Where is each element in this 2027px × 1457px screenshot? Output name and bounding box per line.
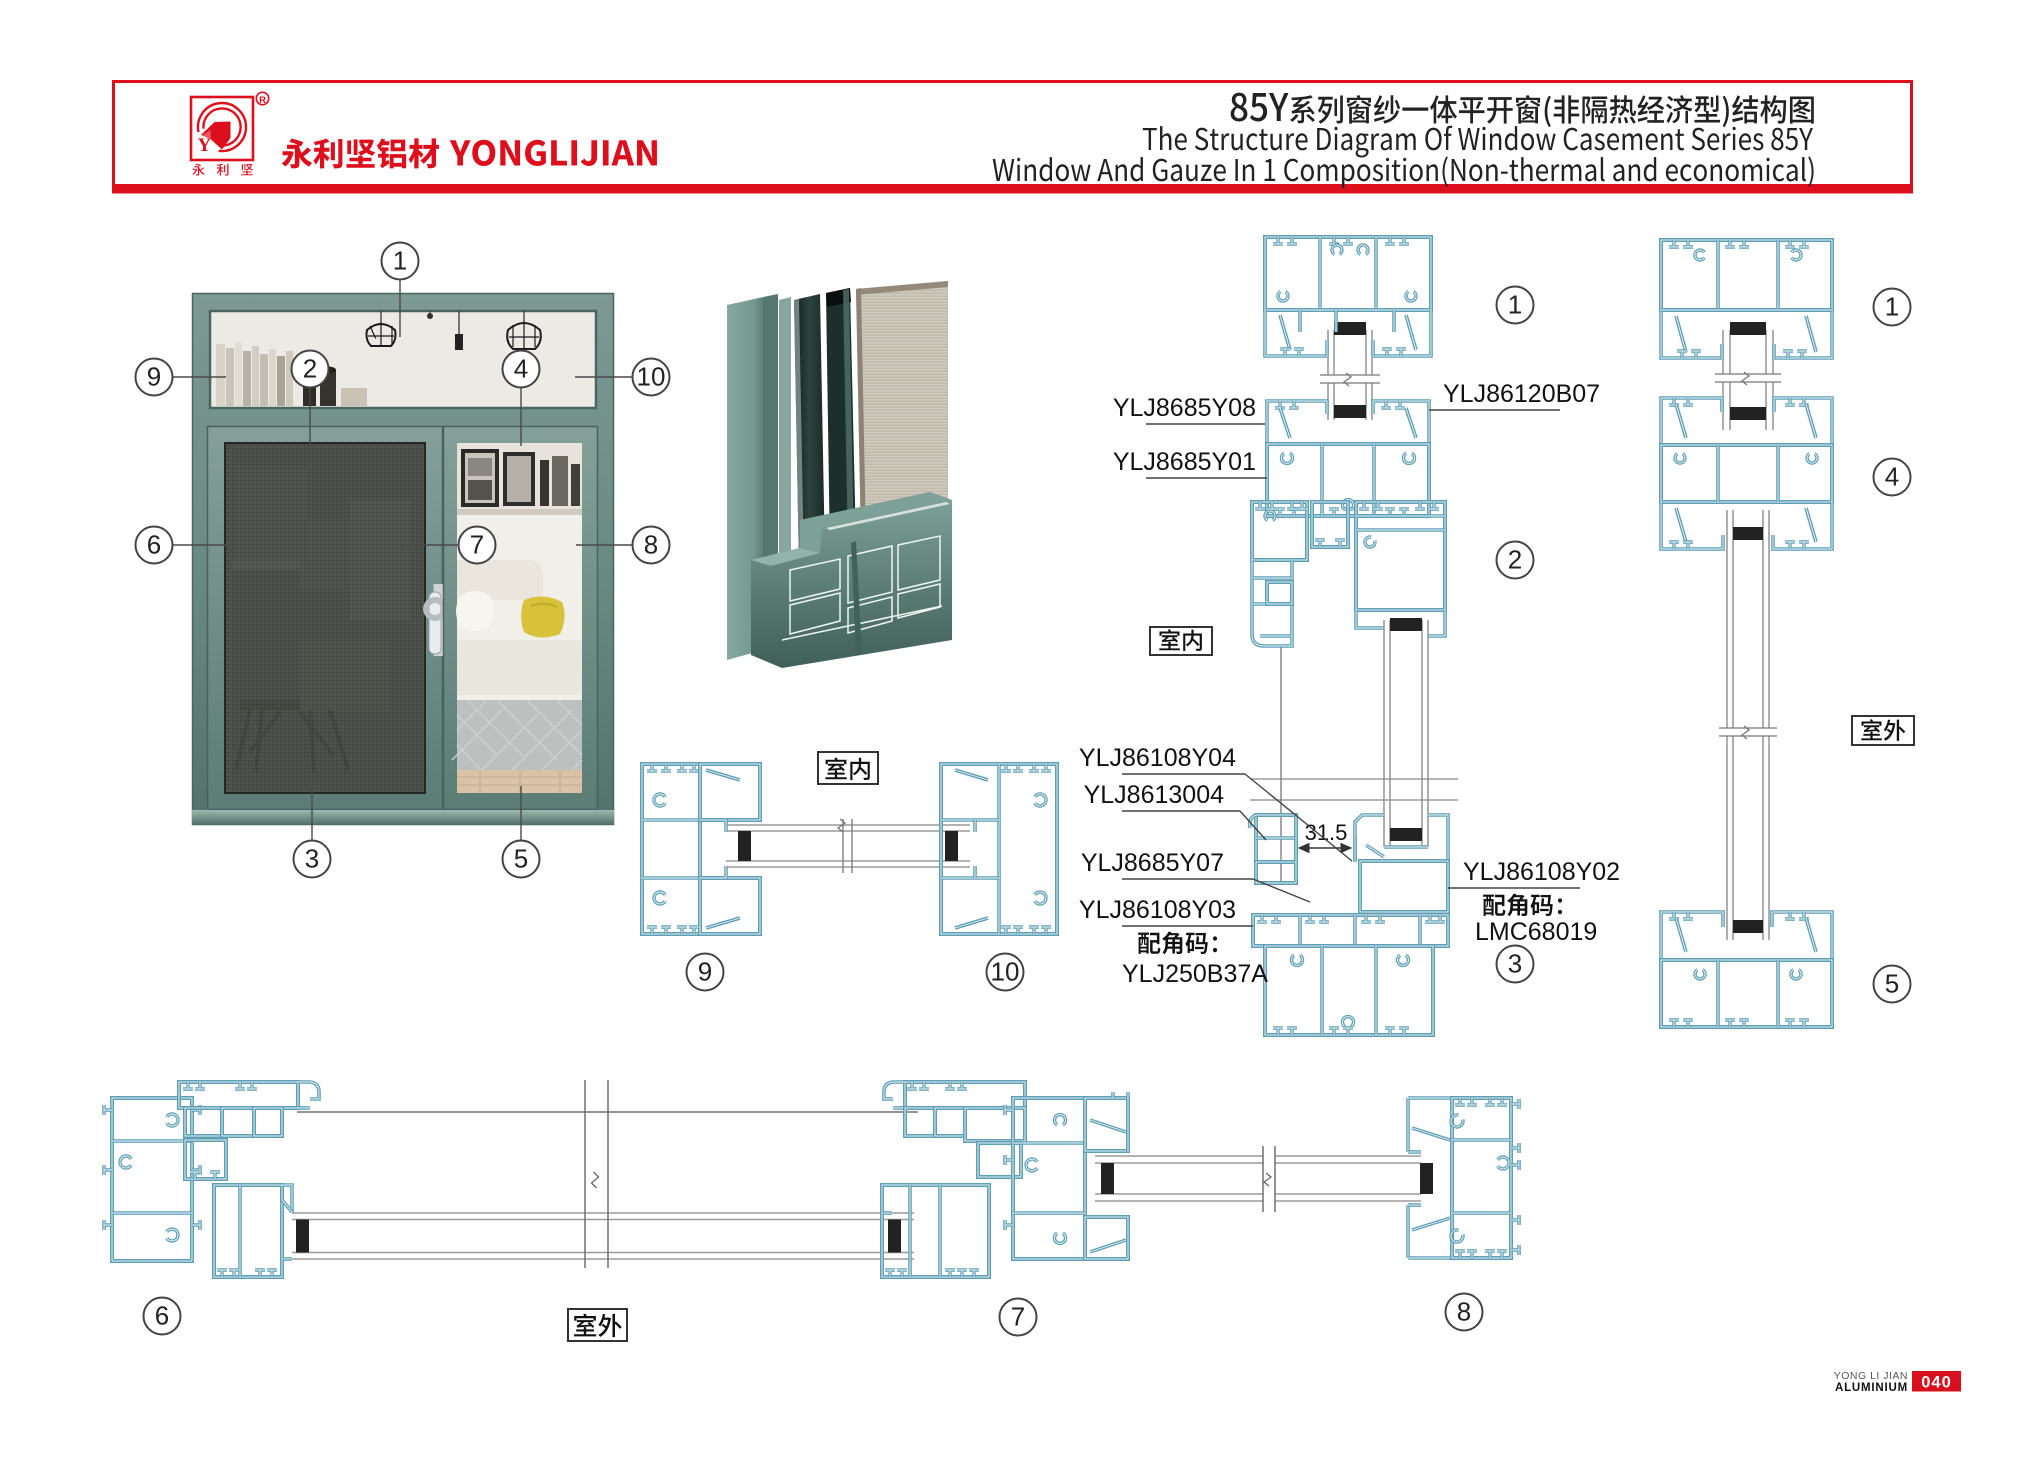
svg-text:ALUMINIUM: ALUMINIUM <box>1835 1382 1908 1394</box>
svg-text:31.5: 31.5 <box>1305 820 1348 845</box>
svg-text:YONG LI JIAN: YONG LI JIAN <box>1834 1370 1908 1382</box>
svg-text:5: 5 <box>514 844 528 874</box>
svg-text:10: 10 <box>991 957 1020 987</box>
svg-text:040: 040 <box>1921 1374 1952 1392</box>
svg-text:9: 9 <box>147 362 161 392</box>
svg-text:R: R <box>259 95 266 106</box>
svg-text:YLJ8613004: YLJ8613004 <box>1084 781 1225 809</box>
svg-text:1: 1 <box>393 246 407 276</box>
svg-text:5: 5 <box>1885 969 1899 999</box>
svg-text:2: 2 <box>303 354 317 384</box>
svg-text:1: 1 <box>1885 292 1899 322</box>
svg-text:YLJ250B37A: YLJ250B37A <box>1122 960 1268 988</box>
svg-text:1: 1 <box>1508 290 1522 320</box>
svg-text:10: 10 <box>637 362 666 392</box>
svg-text:6: 6 <box>155 1301 169 1331</box>
svg-text:YLJ8685Y01: YLJ8685Y01 <box>1113 448 1256 476</box>
svg-text:4: 4 <box>514 354 528 384</box>
svg-text:YLJ8685Y07: YLJ8685Y07 <box>1081 849 1224 877</box>
svg-text:YLJ86108Y02: YLJ86108Y02 <box>1463 858 1620 886</box>
svg-text:YLJ86108Y04: YLJ86108Y04 <box>1079 744 1236 772</box>
svg-text:Y: Y <box>198 135 212 156</box>
svg-text:2: 2 <box>1508 545 1522 575</box>
svg-text:7: 7 <box>470 530 484 560</box>
svg-text:3: 3 <box>1508 949 1522 979</box>
svg-text:8: 8 <box>644 530 658 560</box>
svg-text:YLJ86120B07: YLJ86120B07 <box>1443 380 1600 408</box>
svg-text:3: 3 <box>305 844 319 874</box>
svg-text:9: 9 <box>698 957 712 987</box>
svg-text:4: 4 <box>1885 462 1899 492</box>
svg-text:6: 6 <box>147 530 161 560</box>
svg-text:LMC68019: LMC68019 <box>1475 918 1597 946</box>
svg-text:8: 8 <box>1457 1297 1471 1327</box>
svg-text:YLJ8685Y08: YLJ8685Y08 <box>1113 394 1256 422</box>
svg-text:YLJ86108Y03: YLJ86108Y03 <box>1079 896 1236 924</box>
svg-text:7: 7 <box>1011 1302 1025 1332</box>
